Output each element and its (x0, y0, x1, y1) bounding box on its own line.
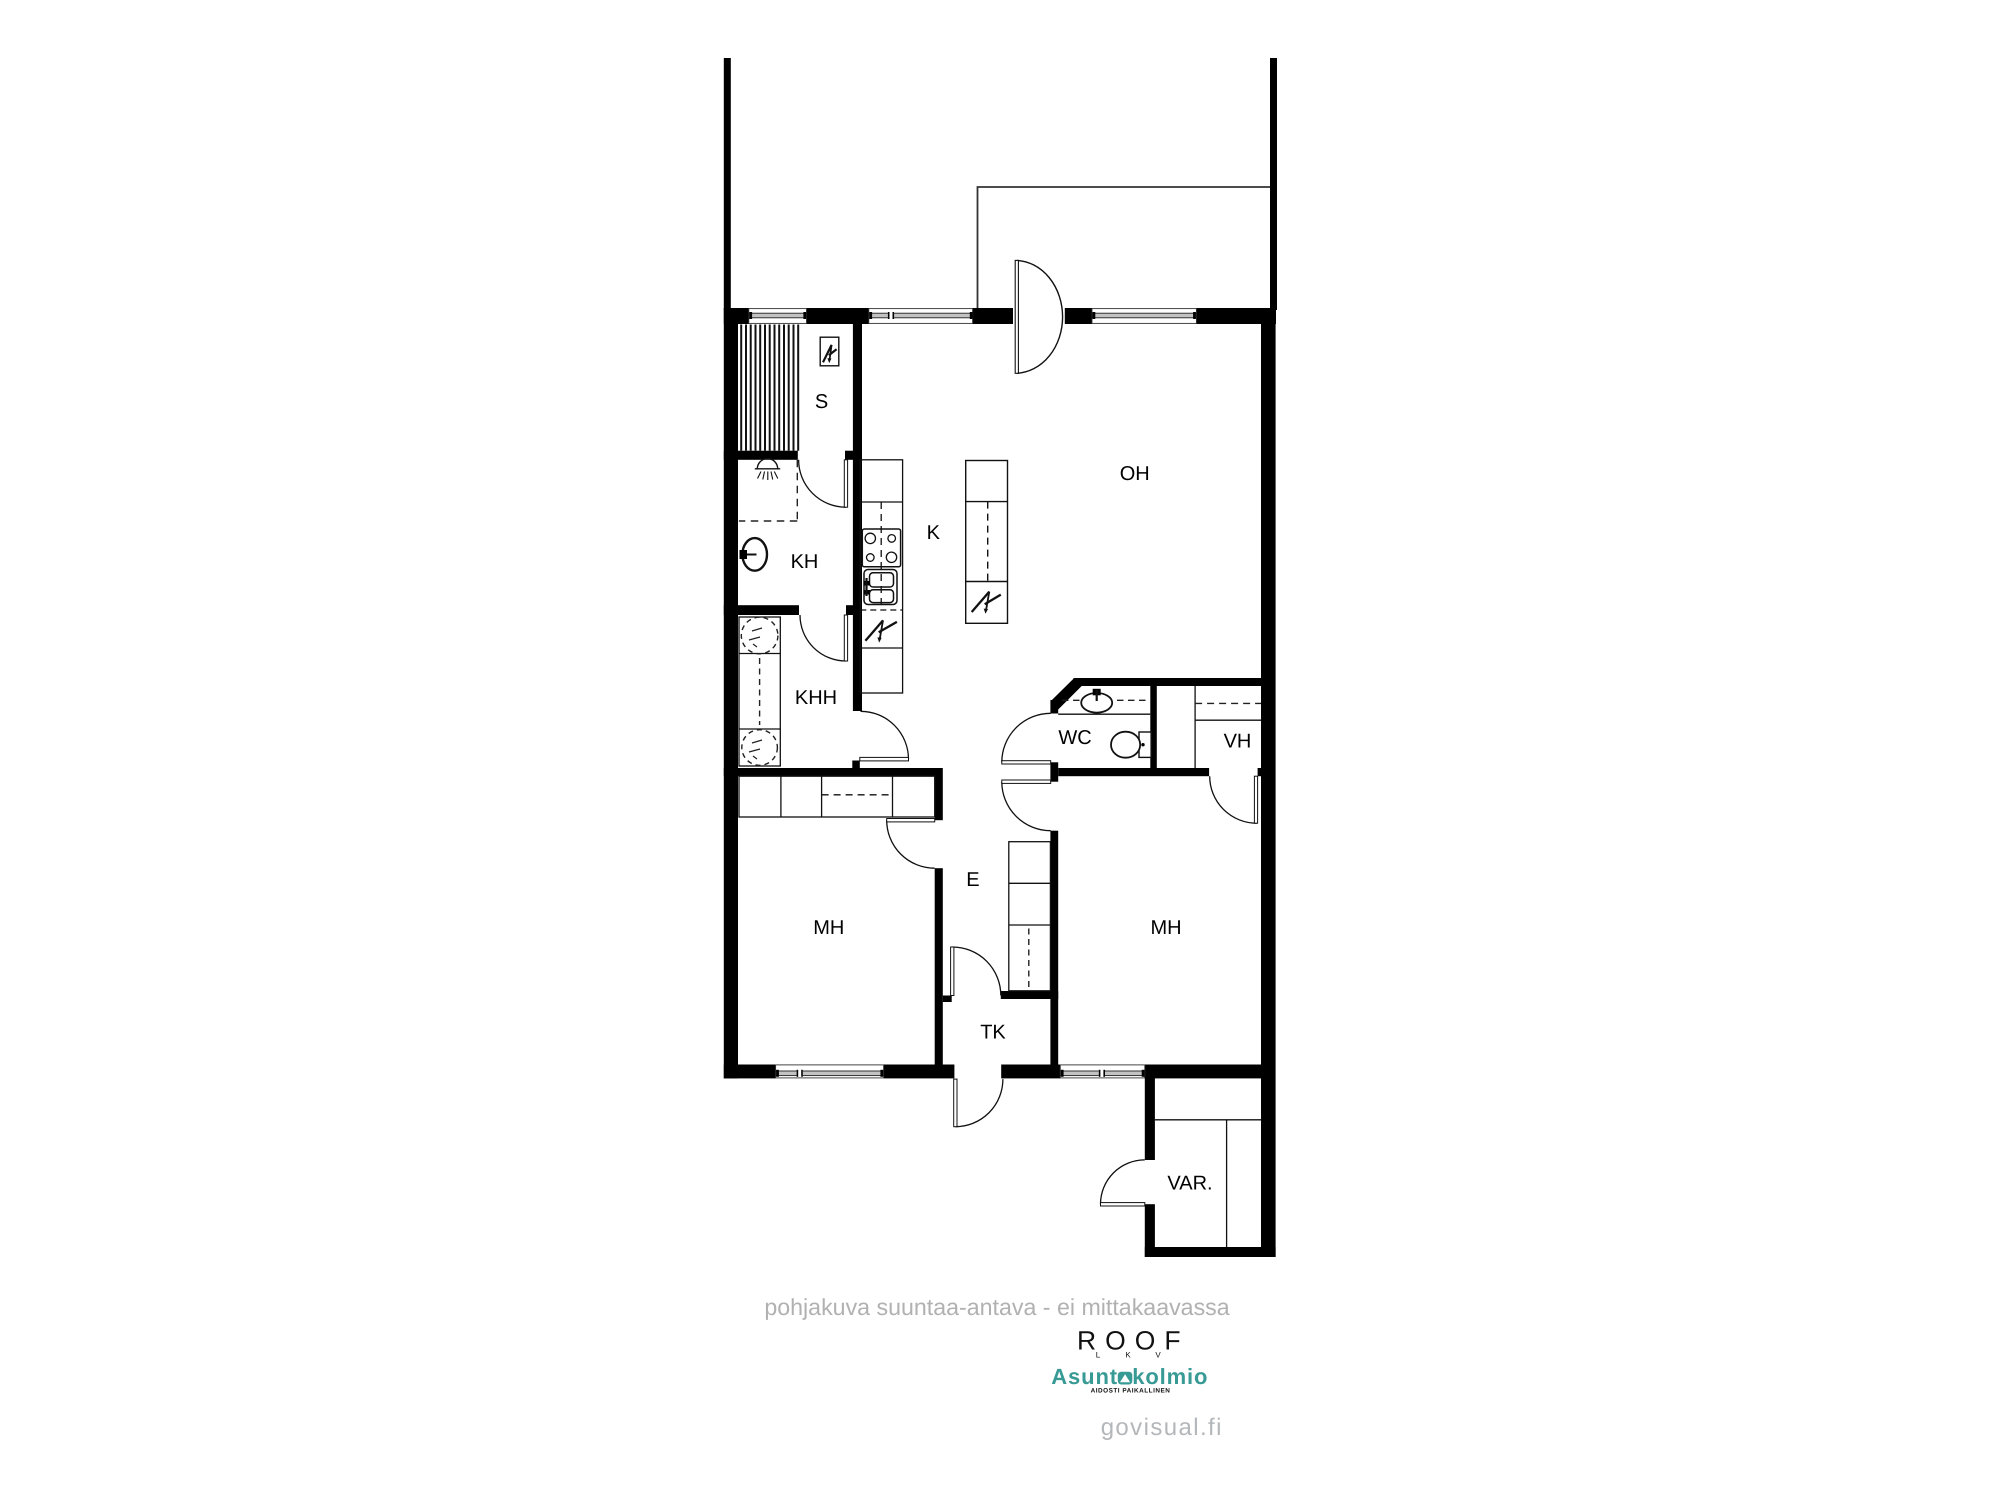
svg-text:VH: VH (1224, 731, 1252, 753)
svg-text:govisual.fi: govisual.fi (1101, 1414, 1223, 1441)
svg-text:L: L (1096, 1351, 1101, 1360)
svg-text:TK: TK (980, 1022, 1006, 1044)
svg-text:OH: OH (1120, 463, 1150, 485)
svg-text:K: K (1125, 1351, 1131, 1360)
svg-text:S: S (815, 391, 828, 413)
svg-text:E: E (966, 869, 979, 891)
svg-text:WC: WC (1058, 727, 1091, 749)
svg-text:MH: MH (813, 917, 844, 939)
svg-text:ROOF: ROOF (1077, 1326, 1190, 1356)
svg-text:VAR.: VAR. (1167, 1173, 1212, 1195)
svg-text:pohjakuva suuntaa-antava - ei: pohjakuva suuntaa-antava - ei mittakaava… (764, 1294, 1229, 1320)
svg-text:KHH: KHH (795, 687, 837, 709)
svg-text:AIDOSTI PAIKALLINEN: AIDOSTI PAIKALLINEN (1091, 1388, 1171, 1395)
svg-text:K: K (927, 522, 941, 544)
svg-text:KH: KH (791, 551, 819, 573)
svg-text:V: V (1155, 1351, 1161, 1360)
svg-text:MH: MH (1150, 917, 1181, 939)
